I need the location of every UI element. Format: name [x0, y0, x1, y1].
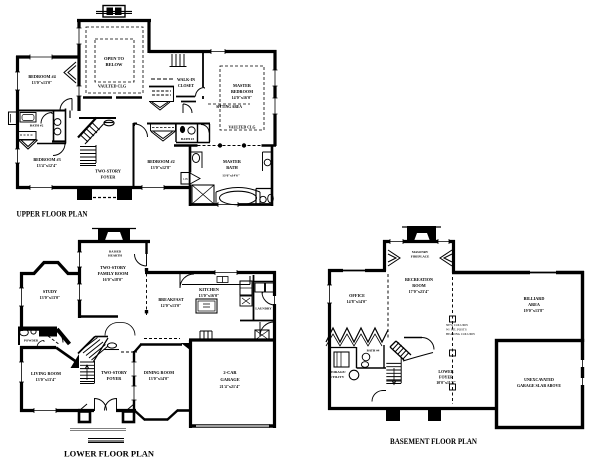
svg-text:VAULTED CLG: VAULTED CLG [229, 126, 256, 130]
svg-text:UNEXCAVATED: UNEXCAVATED [524, 377, 554, 382]
svg-text:FOYER: FOYER [107, 376, 123, 381]
svg-text:BEARING COLUMN: BEARING COLUMN [446, 332, 475, 336]
svg-text:BATH #4: BATH #4 [367, 349, 380, 353]
svg-text:FOYER: FOYER [101, 175, 117, 180]
svg-text:13'0"x13'4": 13'0"x13'4" [36, 377, 57, 382]
svg-text:13'4"x12'4": 13'4"x12'4" [37, 163, 58, 168]
svg-text:UTILITY: UTILITY [330, 375, 345, 379]
svg-text:BATH: BATH [226, 165, 238, 170]
svg-text:HEARTH: HEARTH [108, 254, 122, 258]
svg-text:21'4"x21'4": 21'4"x21'4" [220, 384, 241, 389]
svg-text:13'0"x16'0": 13'0"x16'0" [199, 293, 220, 298]
svg-text:STORAGE/: STORAGE/ [328, 370, 346, 374]
svg-text:CLOSET: CLOSET [178, 83, 195, 88]
svg-text:TWO-STORY: TWO-STORY [101, 370, 127, 375]
svg-text:FOYER: FOYER [439, 375, 453, 380]
svg-text:19'0"x13'8": 19'0"x13'8" [524, 308, 545, 313]
svg-text:12'0"x13'0": 12'0"x13'0" [161, 303, 182, 308]
svg-text:BELOW: BELOW [105, 62, 123, 67]
svg-text:W/ STL POSTS: W/ STL POSTS [446, 328, 467, 332]
svg-text:BILLIARD: BILLIARD [524, 296, 545, 301]
svg-text:LOWER FLOOR PLAN: LOWER FLOOR PLAN [64, 449, 155, 459]
svg-text:ROOM: ROOM [412, 283, 426, 288]
svg-text:16'0"x18'0": 16'0"x18'0" [103, 277, 124, 282]
svg-text:BEDROOM #3: BEDROOM #3 [33, 157, 60, 162]
svg-text:TWO-STORY: TWO-STORY [95, 169, 121, 174]
svg-text:13'0"x12'8": 13'0"x12'8" [151, 165, 172, 170]
svg-text:FAMILY ROOM: FAMILY ROOM [98, 271, 129, 276]
svg-text:OPEN TO: OPEN TO [104, 56, 124, 61]
svg-text:AREA: AREA [528, 302, 540, 307]
svg-text:BEDROOM #4: BEDROOM #4 [28, 74, 56, 79]
svg-text:MASONRY: MASONRY [412, 250, 429, 254]
svg-text:MASTER: MASTER [233, 83, 252, 88]
svg-text:STUDY: STUDY [43, 289, 57, 294]
svg-text:NEW COLUMN: NEW COLUMN [446, 323, 469, 327]
svg-text:13'0"x13'0": 13'0"x13'0" [32, 80, 53, 85]
svg-text:LAUNDRY: LAUNDRY [255, 307, 272, 311]
svg-text:LIVING ROOM: LIVING ROOM [31, 371, 61, 376]
svg-text:BREAKFAST: BREAKFAST [158, 297, 183, 302]
svg-text:LOWER: LOWER [438, 369, 453, 374]
svg-text:14'8"x14'0": 14'8"x14'0" [347, 299, 368, 304]
svg-text:BASEMENT FLOOR PLAN: BASEMENT FLOOR PLAN [390, 436, 478, 446]
svg-text:POWDER: POWDER [24, 339, 39, 343]
svg-text:RECREATION: RECREATION [405, 277, 433, 282]
svg-text:TWO-STORY: TWO-STORY [100, 265, 126, 270]
svg-text:14'0"x16'0": 14'0"x16'0" [232, 95, 253, 100]
svg-text:FIREPLACE: FIREPLACE [411, 255, 429, 259]
svg-text:BEDROOM #2: BEDROOM #2 [147, 159, 174, 164]
svg-text:13'0"x13'0": 13'0"x13'0" [40, 295, 61, 300]
svg-text:KITCHEN: KITCHEN [199, 287, 219, 292]
svg-text:13'6"x14'6": 13'6"x14'6" [222, 174, 240, 178]
svg-text:UPPER FLOOR PLAN: UPPER FLOOR PLAN [17, 209, 89, 219]
svg-text:10'0"x11'4": 10'0"x11'4" [436, 381, 455, 385]
svg-text:OFFICE: OFFICE [349, 293, 365, 298]
svg-text:17'0"x23'4": 17'0"x23'4" [409, 289, 430, 294]
svg-text:BEDROOM: BEDROOM [231, 89, 253, 94]
svg-text:13'0"x14'0": 13'0"x14'0" [149, 376, 170, 381]
svg-text:SITTING AREA: SITTING AREA [216, 105, 242, 109]
svg-text:BATH #2: BATH #2 [30, 124, 44, 128]
svg-text:LIN: LIN [183, 178, 188, 181]
svg-text:2-CAR: 2-CAR [223, 370, 237, 375]
svg-text:WALK-IN: WALK-IN [177, 77, 195, 82]
svg-text:GARAGE SLAB ABOVE: GARAGE SLAB ABOVE [517, 383, 561, 388]
svg-text:BATH #3: BATH #3 [181, 137, 195, 141]
svg-text:DINING ROOM: DINING ROOM [144, 370, 174, 375]
svg-text:MASTER: MASTER [223, 159, 242, 164]
svg-text:GARAGE: GARAGE [220, 377, 239, 382]
svg-text:VAULTED CLG: VAULTED CLG [98, 84, 126, 89]
